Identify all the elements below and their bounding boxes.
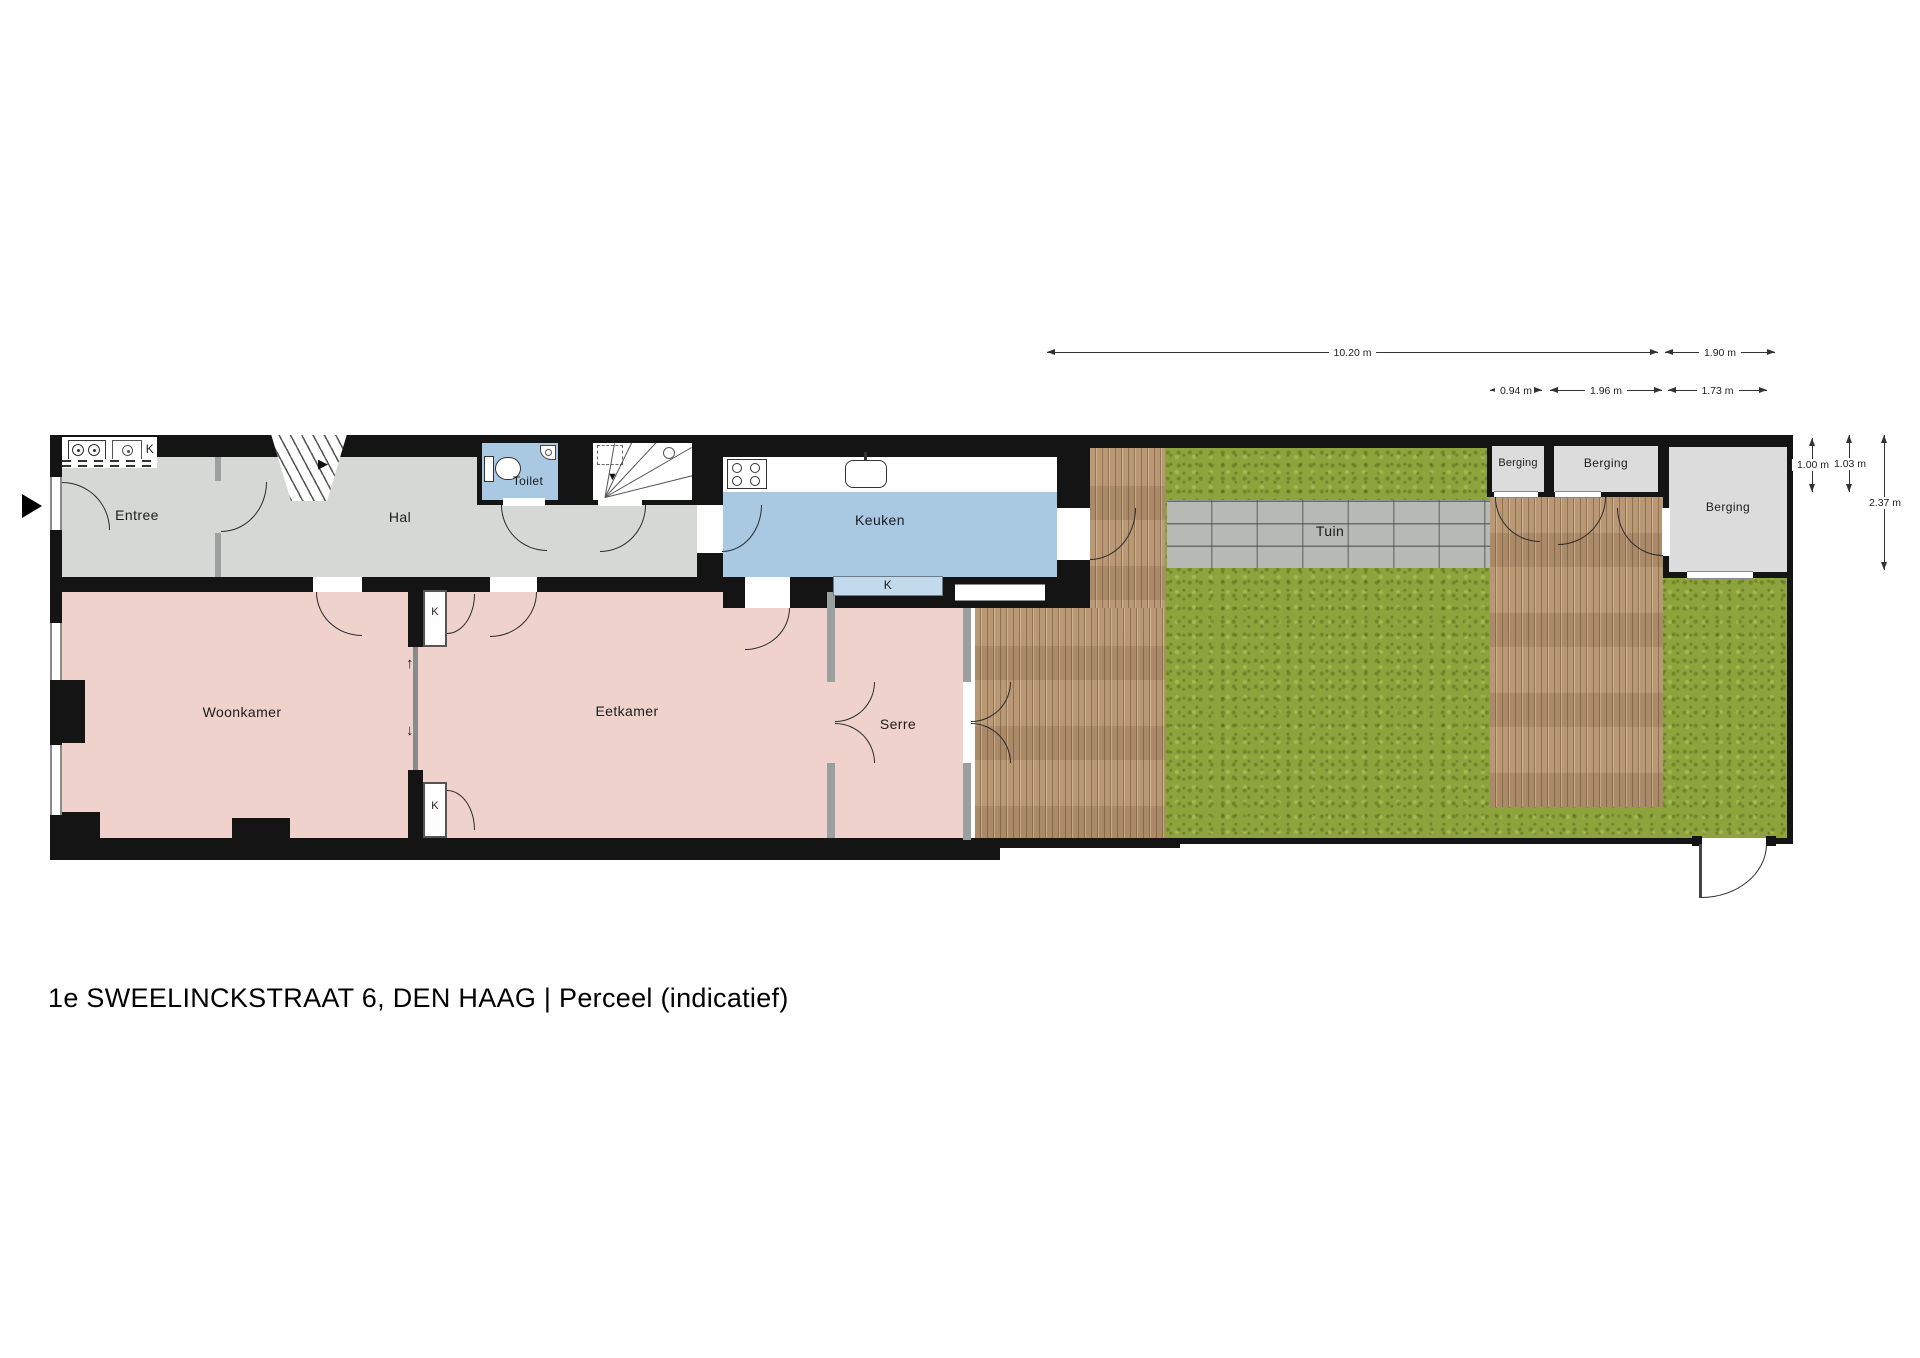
dim-berging3-width: 1.90 m <box>1665 352 1775 353</box>
partition-entree-hal-upper <box>215 457 221 481</box>
boiler-icon <box>663 447 675 459</box>
deck-lower <box>975 608 1165 840</box>
wall-serre-right-top <box>963 608 971 682</box>
ventilation-icon <box>112 440 142 461</box>
slide-arrow-down: ↓ <box>406 722 414 739</box>
kitchen-sink-icon <box>845 460 887 488</box>
partition-entree-hal-lower <box>215 533 221 577</box>
label-woonkamer: Woonkamer <box>182 704 302 720</box>
dim-h1: 1.00 m <box>1812 438 1813 492</box>
label-keuken: Keuken <box>840 512 920 528</box>
dim-h3-label: 2.37 m <box>1864 497 1906 509</box>
wall-stub-ensuite-top <box>408 577 423 647</box>
front-door-frame <box>50 477 62 530</box>
closet-label-kitchen: K <box>881 578 895 592</box>
label-serre: Serre <box>858 716 938 732</box>
wall-bottom-deck <box>1000 838 1180 848</box>
wall-serre-eetkamer-top <box>827 592 835 682</box>
wall-bottom-house <box>50 838 1000 860</box>
page-title: 1e SWEELINCKSTRAAT 6, DEN HAAG | Perceel… <box>48 983 789 1014</box>
dim-total-width-label: 10.20 m <box>1329 347 1377 359</box>
opening-keuken-eetkamer <box>745 577 790 608</box>
dim-berging3-width-label: 1.90 m <box>1699 347 1741 359</box>
label-berging-1: Berging <box>1489 457 1547 469</box>
label-berging-2: Berging <box>1556 456 1656 470</box>
wall-serre-right-bottom <box>963 763 971 840</box>
closet-ensuite-top <box>423 590 447 647</box>
dim-w1-label: 0.94 m <box>1495 385 1537 397</box>
kitchen-tap-icon <box>864 452 867 461</box>
gate-post-right <box>1766 836 1776 846</box>
dim-w2-label: 1.96 m <box>1585 385 1627 397</box>
meter-box-icon <box>68 440 106 461</box>
wall-toilet-stairs <box>560 438 590 505</box>
window-kitchen-south <box>955 584 1045 601</box>
toilet-sink-icon <box>540 445 556 460</box>
opening-keuken-deck <box>1057 508 1090 560</box>
chimney-bottom <box>232 818 290 838</box>
stairs-down-arrow-icon: ▼ <box>607 471 618 483</box>
label-toilet: Toilet <box>498 474 558 488</box>
stove-icon <box>727 459 767 489</box>
window-woonkamer-2 <box>50 745 62 815</box>
dim-w1: 0.94 m <box>1490 390 1542 391</box>
dim-w3: 1.73 m <box>1668 390 1767 391</box>
label-entree: Entree <box>97 507 177 523</box>
berging-3-bottom-door <box>1687 571 1753 579</box>
wall-stub-ensuite-bottom <box>408 770 423 838</box>
label-hal: Hal <box>360 509 440 525</box>
kitchen-counter <box>723 457 1057 492</box>
dim-h1-label: 1.00 m <box>1792 459 1834 471</box>
window-woonkamer-1 <box>50 623 62 680</box>
floorplan-canvas: K ▶ ▼ K ↑ ↓ <box>0 0 1920 1358</box>
berging-1 <box>1487 441 1549 497</box>
closet-label-entree: K <box>143 442 157 456</box>
berging-3-side-opening <box>1662 508 1670 556</box>
opening-hal-eetkamer <box>490 577 537 592</box>
dim-h2: 1.03 m <box>1849 435 1850 492</box>
dim-w3-label: 1.73 m <box>1696 385 1738 397</box>
dim-total-width: 10.20 m <box>1047 352 1658 353</box>
label-berging-3: Berging <box>1668 500 1788 514</box>
label-closet-top: K <box>428 606 442 618</box>
dim-h2-label: 1.03 m <box>1829 458 1871 470</box>
kitchen-floor <box>723 492 1057 577</box>
label-tuin: Tuin <box>1290 523 1370 539</box>
dim-w2: 1.96 m <box>1550 390 1662 391</box>
gate-door-arc <box>1701 844 1767 898</box>
label-closet-bottom: K <box>428 800 442 812</box>
toilet-room <box>477 438 563 505</box>
stairs-winder-room: ▼ <box>588 438 697 505</box>
toilet-tank-icon <box>484 456 494 482</box>
meter-dashed-lines <box>62 459 157 468</box>
stairs-up-arrow-icon: ▶ <box>318 456 328 472</box>
slide-arrow-up: ↑ <box>406 655 414 672</box>
dim-h3: 2.37 m <box>1884 435 1885 570</box>
label-eetkamer: Eetkamer <box>567 703 687 719</box>
opening-hal-woonkamer <box>313 577 362 592</box>
entrance-arrow-icon <box>22 494 42 518</box>
opening-hal-keuken <box>697 505 723 553</box>
chimney-left <box>50 680 85 743</box>
wall-serre-eetkamer-bottom <box>827 763 835 838</box>
